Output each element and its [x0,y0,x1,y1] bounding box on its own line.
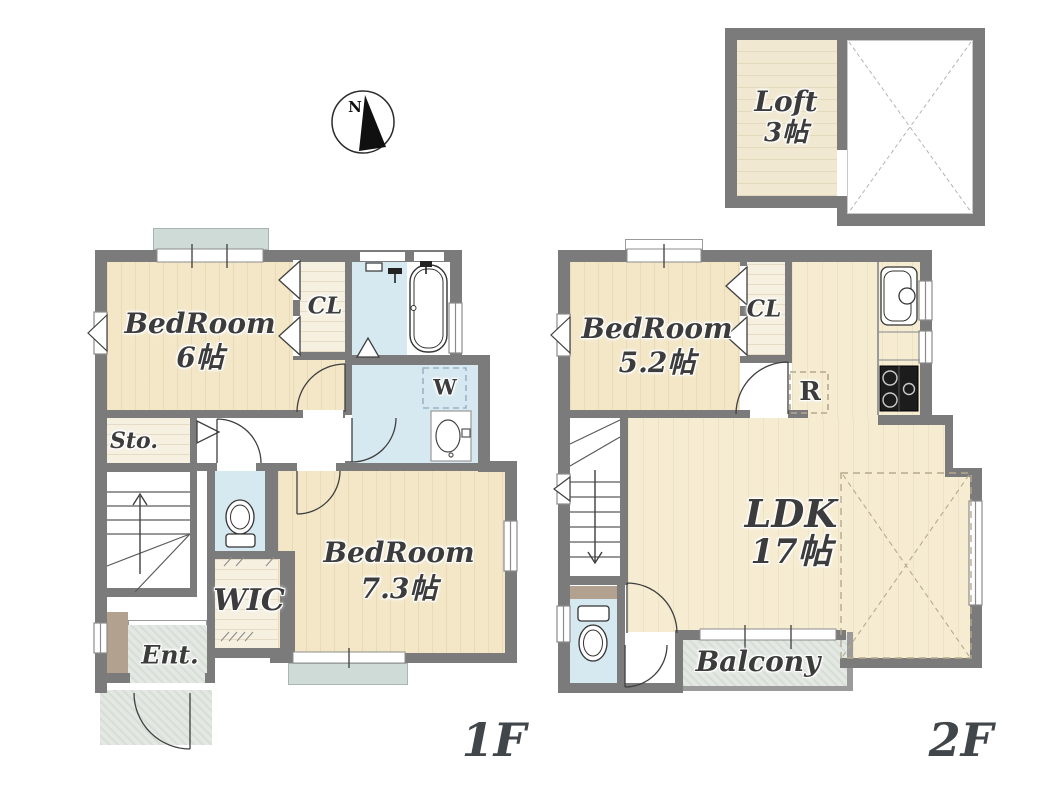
room-label-ldk-name: LDK [745,495,838,533]
wall [345,355,490,365]
wall [973,28,985,226]
room-label-storage: Sto. [110,430,158,452]
toilet-shelf-2f [570,586,617,599]
exterior-mask [953,408,1060,470]
room-floor-toilet-2f [570,599,617,683]
wall [920,250,932,425]
floor-label-2f: 2F [929,717,994,763]
wall [837,28,847,150]
room-label-bedroom52-size: 5.2帖 [619,349,696,377]
room-floor-toilet-1f [215,471,265,551]
wall [878,415,953,425]
window-sill [288,663,408,685]
wall [617,583,625,683]
wall [558,683,683,693]
door-opening [345,415,352,461]
room-label-wic: WIC [213,586,285,616]
bathtub-icon [410,265,447,352]
wall [450,250,462,365]
room-floor-bedroom6-alcove [293,360,345,410]
room-label-loft-name: Loft [754,88,817,116]
room-label-balcony: Balcony [696,648,821,676]
wall [205,673,215,683]
balcony-rail [675,686,853,691]
wall [788,410,808,418]
room-label-washer: W [433,377,457,398]
window-sill [153,228,269,250]
wall [558,410,750,418]
wall [293,352,352,360]
door-opening [293,316,300,356]
wall [558,250,570,693]
room-label-refrigerator: R [799,379,821,405]
wall [558,576,628,585]
wall [95,673,130,683]
window-opening [360,252,405,261]
floor-label-1f: 1F [462,717,527,763]
wall [207,463,215,658]
wall [95,410,303,418]
wall [265,463,278,558]
hall-floor-2f [628,632,675,683]
wall [837,214,985,226]
wall [505,461,517,663]
room-label-ldk-size: 17帖 [750,535,831,569]
wall [405,653,517,663]
wall [478,355,490,470]
room-label-bedroom6-size: 6帖 [176,344,223,372]
room-label-closet-1f: CL [308,295,342,318]
wall [740,355,792,363]
window-sill [625,239,703,250]
wall [725,196,847,208]
wall [836,630,846,640]
wall [725,28,985,40]
wall [95,250,462,262]
wall [837,196,847,226]
stairs-1f-icon [107,492,190,592]
window-opening [414,252,444,261]
room-label-entrance: Ent. [141,643,198,668]
room-label-loft-size: 3帖 [764,120,808,146]
room-floor-shower [352,262,407,355]
floor-plan-canvas: N [0,0,1060,795]
svg-text:N: N [348,98,362,116]
door-opening [293,260,300,300]
entrance-porch [100,690,212,745]
wall [620,418,628,578]
room-floor-washroom [352,365,478,463]
wall [558,250,932,262]
wall [840,658,982,668]
wall [675,630,683,693]
room-label-bedroom6-name: BedRoom [124,310,275,338]
room-label-closet-2f: CL [747,298,781,321]
wall [725,28,737,208]
loft-void-area [847,40,973,214]
stairs-2f-icon [570,420,620,563]
room-label-bedroom52-name: BedRoom [581,315,732,343]
wall [785,250,792,363]
wall [95,463,197,472]
wall [336,463,505,471]
compass-icon: N [332,91,394,153]
wall [970,468,982,668]
room-label-bedroom73-size: 7.3帖 [361,575,438,603]
wall [190,418,197,595]
wall [95,588,197,597]
room-label-bedroom73-name: BedRoom [323,539,474,567]
